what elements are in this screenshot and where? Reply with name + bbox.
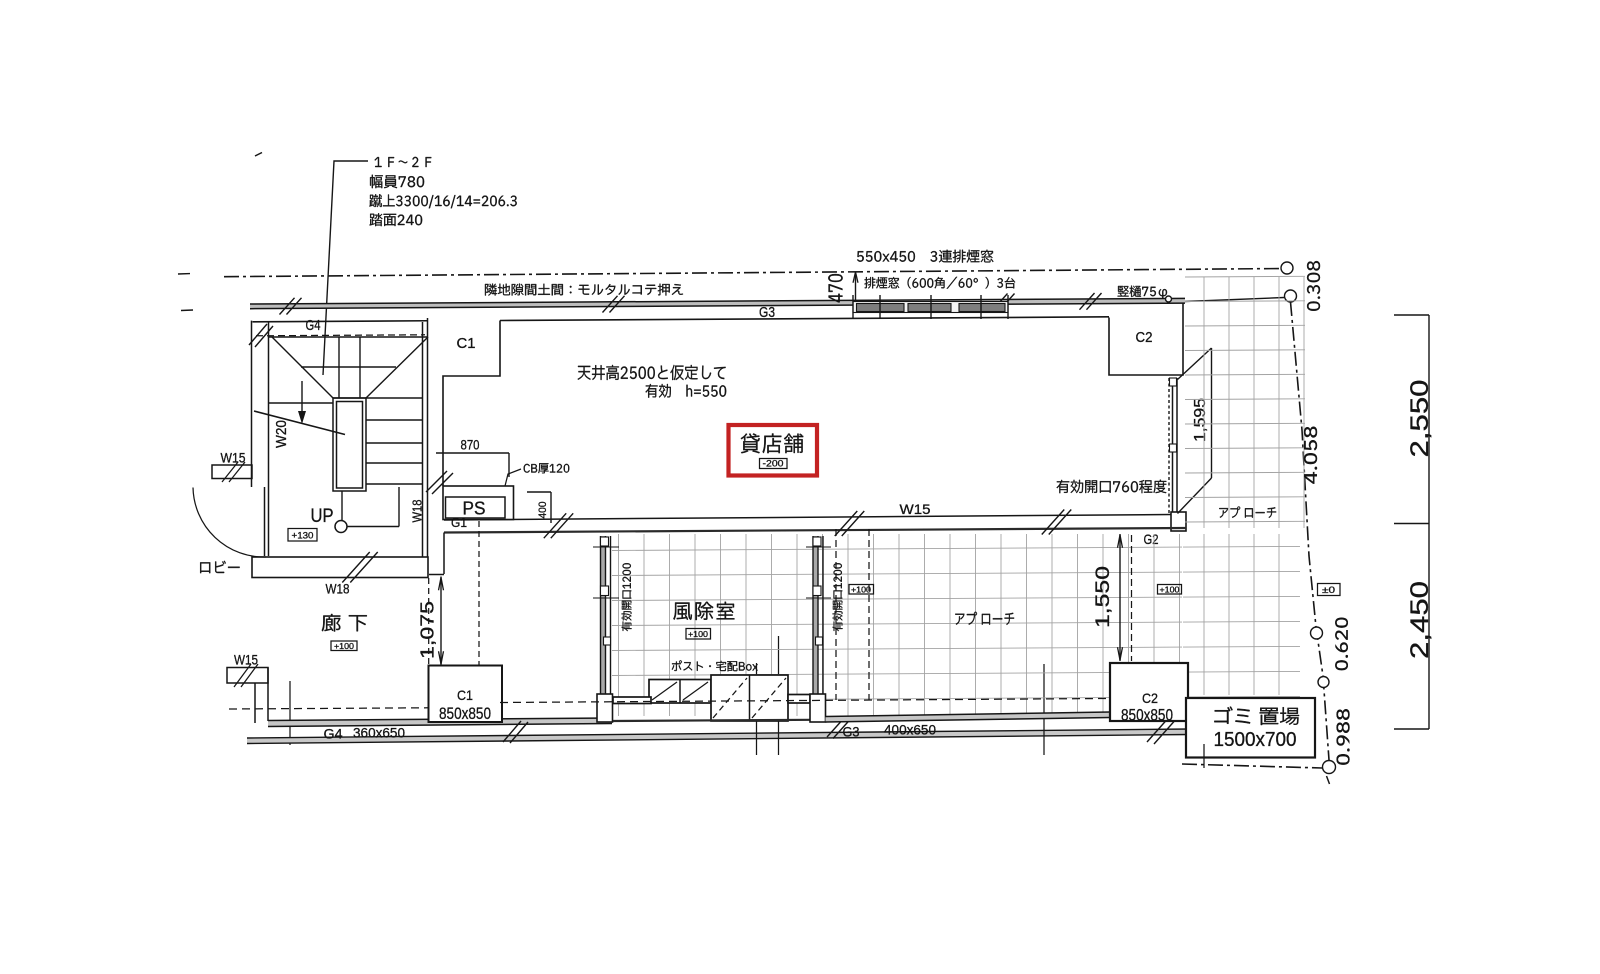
svg-text:1,550: 1,550	[1093, 566, 1114, 628]
svg-text:UP: UP	[311, 506, 334, 527]
svg-text:850x850: 850x850	[1121, 706, 1173, 725]
svg-text:W15: W15	[234, 652, 258, 668]
svg-text:C2: C2	[1136, 329, 1153, 346]
svg-text:C1: C1	[457, 687, 473, 703]
svg-text:W20: W20	[274, 420, 290, 448]
svg-text:C2: C2	[1142, 690, 1158, 706]
svg-text:+100: +100	[688, 629, 708, 639]
svg-text:G4: G4	[324, 726, 343, 742]
svg-text:400: 400	[537, 502, 549, 519]
svg-text:W18: W18	[326, 581, 350, 597]
svg-text:1,075: 1,075	[417, 601, 437, 659]
svg-text:850x850: 850x850	[439, 704, 491, 723]
svg-text:C1: C1	[457, 335, 476, 352]
svg-text:1,595: 1,595	[1192, 398, 1209, 442]
svg-text:2,450: 2,450	[1406, 581, 1434, 659]
svg-text:G4: G4	[306, 318, 321, 334]
svg-text:±0: ±0	[1322, 585, 1335, 596]
svg-text:-200: -200	[763, 459, 784, 469]
svg-text:+130: +130	[292, 531, 314, 541]
svg-text:W15: W15	[221, 450, 246, 466]
svg-text:G2: G2	[1144, 531, 1159, 547]
svg-text:G3: G3	[759, 304, 775, 321]
svg-text:360x650: 360x650	[353, 725, 405, 741]
svg-text:+100: +100	[334, 641, 354, 651]
svg-text:2,550: 2,550	[1406, 380, 1434, 458]
svg-text:400x650: 400x650	[884, 722, 936, 738]
svg-text:W15: W15	[900, 501, 931, 517]
svg-text:G3: G3	[843, 724, 860, 740]
svg-text:870: 870	[461, 437, 480, 453]
svg-text:1500x700: 1500x700	[1214, 729, 1297, 751]
svg-text:W18: W18	[410, 500, 425, 523]
svg-text:G1: G1	[451, 515, 467, 530]
svg-text:+100: +100	[851, 584, 871, 594]
svg-text:+100: +100	[1160, 584, 1180, 594]
